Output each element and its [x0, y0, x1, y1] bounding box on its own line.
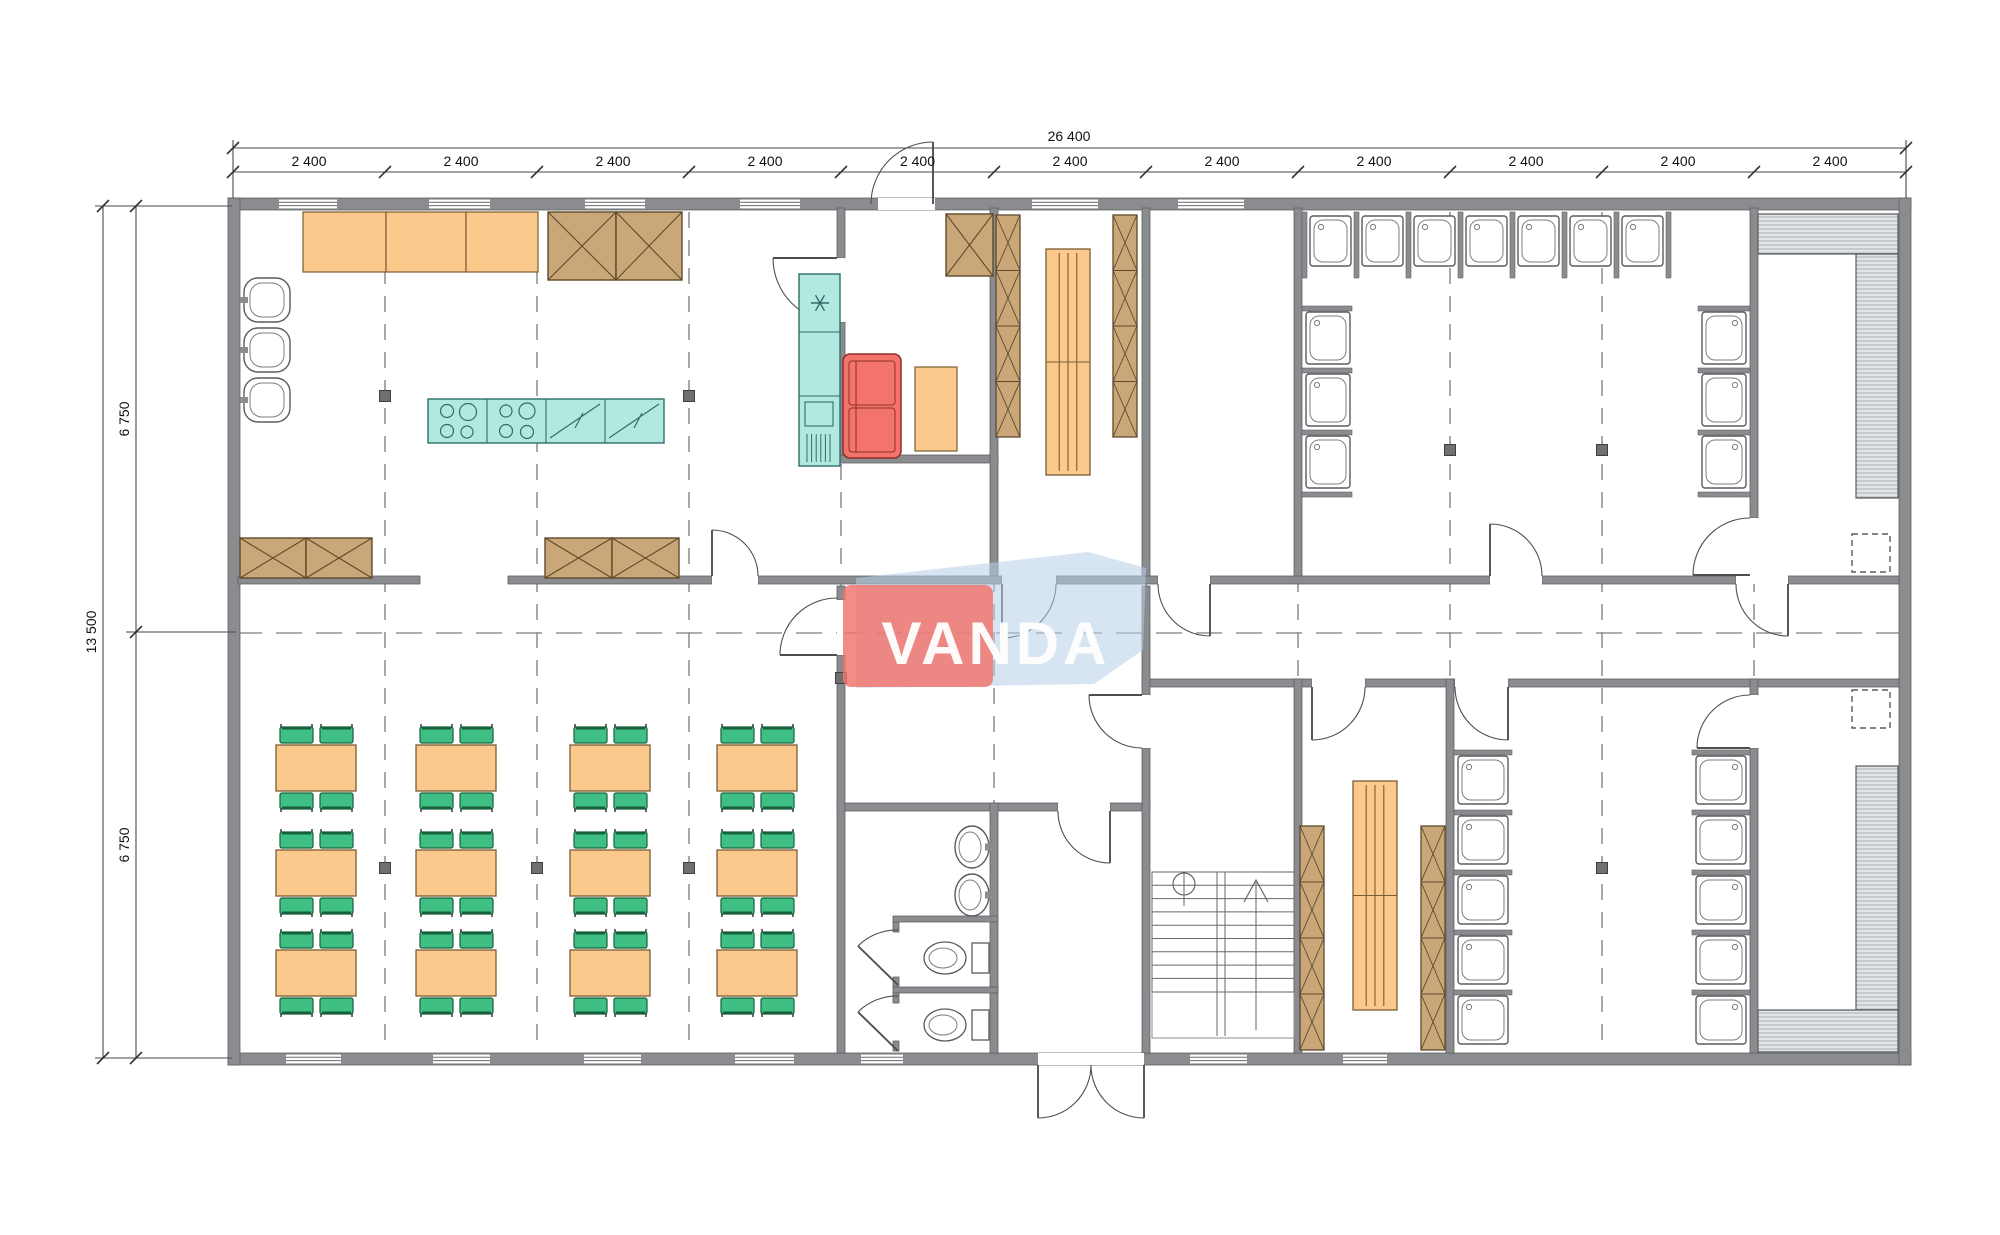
window	[1178, 200, 1244, 209]
door-opening	[1750, 695, 1758, 748]
dining-table	[717, 950, 797, 996]
logo-wordmark: VANDA	[882, 610, 1111, 677]
door-opening	[1142, 695, 1150, 748]
dimension-label: 13 500	[83, 610, 99, 653]
stair-return-outline	[1152, 992, 1294, 1038]
shower-partition	[1698, 430, 1750, 435]
door-swing-arc	[1089, 695, 1142, 748]
shower-partition	[1454, 870, 1512, 875]
wall-segment	[1750, 679, 1758, 695]
window	[740, 200, 800, 209]
door-swing-arc	[1038, 1065, 1091, 1118]
shower-tray	[1458, 936, 1508, 984]
floor-plan-canvas: VANDA 26 4002 4002 4002 4002 4002 4002 4…	[0, 0, 2000, 1235]
side-table	[915, 367, 957, 451]
shower-partition	[1692, 930, 1750, 935]
shower-tray	[1702, 312, 1746, 364]
dining-table	[570, 950, 650, 996]
shower-tray	[1458, 876, 1508, 924]
vanda-watermark-logo: VANDA	[843, 552, 1146, 688]
wall-segment	[893, 987, 998, 993]
dimension-label: 2 400	[443, 153, 478, 169]
wall-segment	[1899, 198, 1911, 1065]
shower-partition	[1406, 212, 1411, 278]
column-marker	[1597, 863, 1608, 874]
shower-partition	[1692, 990, 1750, 995]
wall-segment	[1446, 679, 1454, 1053]
wall-segment	[990, 803, 998, 1053]
door-swing-arc	[1058, 811, 1110, 863]
shower-tray	[1458, 996, 1508, 1044]
shower-partition	[1454, 750, 1512, 755]
wall-segment	[1508, 679, 1899, 687]
shower-partition	[1302, 430, 1352, 435]
door-leaf	[858, 1012, 898, 1051]
dining-table	[717, 850, 797, 896]
dimension-label: 2 400	[747, 153, 782, 169]
wall-segment	[1142, 679, 1312, 687]
column-marker	[380, 863, 391, 874]
door-swing-arc	[712, 530, 758, 576]
column-marker	[1597, 445, 1608, 456]
wall-sink	[244, 278, 290, 322]
sauna-bench	[1758, 1010, 1898, 1052]
wall-segment	[1294, 208, 1302, 576]
door-swing-arc	[1736, 584, 1788, 636]
shower-partition	[1698, 492, 1750, 497]
shower-partition	[1692, 750, 1750, 755]
wall-sink	[244, 378, 290, 422]
shower-partition	[1302, 368, 1352, 373]
window	[279, 200, 337, 209]
shower-partition	[1458, 212, 1463, 278]
door-opening	[1490, 576, 1542, 584]
sink-tap-icon	[240, 297, 248, 303]
stair-flight	[1152, 872, 1294, 992]
window	[735, 1055, 794, 1064]
shower-partition	[1454, 930, 1512, 935]
wall-segment	[1788, 576, 1899, 584]
toilet-bowl	[924, 942, 966, 974]
dimension-label: 2 400	[595, 153, 630, 169]
dimension-label: 2 400	[1812, 153, 1847, 169]
dimension-label: 2 400	[1660, 153, 1695, 169]
shower-partition	[1454, 990, 1512, 995]
dining-table	[570, 850, 650, 896]
door-opening	[712, 576, 758, 584]
basin-tap-icon	[985, 892, 992, 899]
door-swing-arc	[871, 142, 933, 204]
window	[1343, 1055, 1387, 1064]
window	[585, 200, 645, 209]
door-swing-arc	[858, 930, 898, 946]
shower-tray	[1702, 374, 1746, 426]
door-swing-arc	[1490, 524, 1542, 576]
shower-tray	[1696, 876, 1746, 924]
shower-partition	[1510, 212, 1515, 278]
shower-tray	[1702, 436, 1746, 488]
sauna-heater	[1852, 534, 1890, 572]
sauna-bench	[1856, 766, 1898, 1012]
door-swing-arc	[1312, 687, 1365, 740]
dining-table	[276, 850, 356, 896]
shower-tray	[1306, 374, 1350, 426]
column-marker	[1445, 445, 1456, 456]
wall-segment	[1142, 208, 1150, 576]
door-swing-arc	[1091, 1065, 1144, 1118]
window	[433, 1055, 490, 1064]
column-marker	[684, 863, 695, 874]
door-opening	[1158, 576, 1210, 584]
shower-tray	[1458, 756, 1508, 804]
toilet-tank	[972, 943, 989, 973]
window	[584, 1055, 641, 1064]
door-swing-arc	[1693, 518, 1750, 575]
door-swing-arc	[858, 996, 898, 1012]
dimension-label: 2 400	[1356, 153, 1391, 169]
door-opening	[1455, 679, 1508, 687]
shower-tray	[1306, 436, 1350, 488]
shower-tray	[1306, 312, 1350, 364]
wall-sink	[244, 328, 290, 372]
sauna-heater	[1852, 690, 1890, 728]
wall-segment	[1210, 576, 1490, 584]
dining-table	[416, 850, 496, 896]
wall-segment	[837, 208, 845, 258]
dimension-label: 6 750	[116, 827, 132, 862]
dimension-label: 2 400	[291, 153, 326, 169]
door-opening	[1058, 803, 1110, 811]
door-opening	[1038, 1053, 1144, 1065]
wall-segment	[893, 993, 899, 1003]
shower-partition	[1692, 870, 1750, 875]
shower-partition	[1698, 306, 1750, 311]
dining-table	[276, 745, 356, 791]
door-swing-arc	[1455, 687, 1508, 740]
wall-segment	[1142, 748, 1150, 1053]
window	[286, 1055, 341, 1064]
floor-plan-drawing: VANDA 26 4002 4002 4002 4002 4002 4002 4…	[0, 0, 2000, 1235]
wall-segment	[1542, 576, 1736, 584]
wall-segment	[1365, 679, 1455, 687]
shower-tray	[1458, 816, 1508, 864]
shower-tray	[1696, 816, 1746, 864]
shower-partition	[1562, 212, 1567, 278]
column-marker	[380, 391, 391, 402]
shower-tray	[1696, 996, 1746, 1044]
dining-table	[416, 745, 496, 791]
dining-table	[717, 745, 797, 791]
sauna-bench	[1856, 254, 1898, 498]
toilet-bowl	[924, 1009, 966, 1041]
shower-partition	[1454, 810, 1512, 815]
sink-tap-icon	[240, 397, 248, 403]
dimension-label: 2 400	[1052, 153, 1087, 169]
door-leaf	[858, 946, 898, 985]
door-opening	[1750, 518, 1758, 575]
shower-tray	[1696, 756, 1746, 804]
kitchen-counter	[303, 212, 386, 272]
shower-partition	[1302, 492, 1352, 497]
sauna-bench	[1758, 214, 1898, 254]
door-opening	[1736, 576, 1788, 584]
shower-partition	[1698, 368, 1750, 373]
sink-tap-icon	[240, 347, 248, 353]
shower-partition	[1614, 212, 1619, 278]
door-swing-arc	[1158, 584, 1210, 636]
window	[1032, 200, 1098, 209]
door-opening	[878, 198, 935, 210]
wall-segment	[837, 803, 1058, 811]
dining-table	[570, 745, 650, 791]
kitchen-counter	[466, 212, 538, 272]
wall-segment	[837, 655, 845, 1053]
door-opening	[1312, 679, 1365, 687]
dimension-label: 2 400	[900, 153, 935, 169]
dining-table	[276, 950, 356, 996]
window	[861, 1055, 903, 1064]
toilet-tank	[972, 1010, 989, 1040]
basin-tap-icon	[985, 844, 992, 851]
shower-partition	[1354, 212, 1359, 278]
dimension-label: 2 400	[1508, 153, 1543, 169]
door-swing-arc	[780, 598, 837, 655]
shower-partition	[1692, 810, 1750, 815]
kitchen-counter	[386, 212, 466, 272]
wall-segment	[893, 916, 998, 922]
dimension-label: 26 400	[1048, 128, 1091, 144]
wall-segment	[1750, 748, 1758, 1053]
dimension-label: 2 400	[1204, 153, 1239, 169]
dimension-label: 6 750	[116, 401, 132, 436]
column-marker	[684, 391, 695, 402]
shower-tray	[1696, 936, 1746, 984]
shower-partition	[1666, 212, 1671, 278]
dining-table	[416, 950, 496, 996]
window	[429, 200, 490, 209]
door-swing-arc	[1697, 695, 1750, 748]
shower-partition	[1302, 306, 1352, 311]
column-marker	[532, 863, 543, 874]
wall-segment	[1750, 208, 1758, 518]
window	[1190, 1055, 1247, 1064]
shower-partition	[1302, 212, 1307, 278]
sofa	[843, 354, 901, 458]
